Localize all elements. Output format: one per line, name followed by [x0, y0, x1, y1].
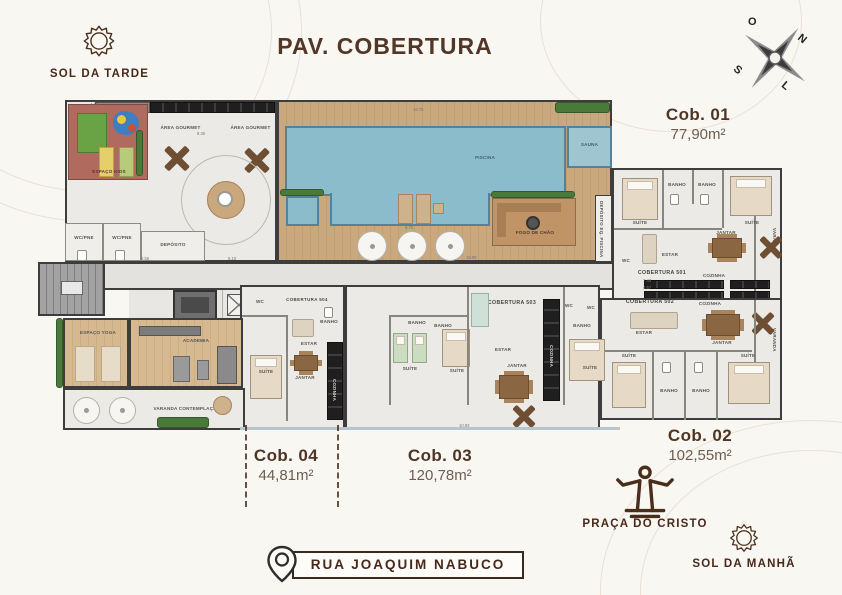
unit-cob04: WC COBERTURA 504 BANHO ESTAR SUÍTE JANTA…	[240, 285, 345, 430]
unit-label-cob02: Cob. 02 102,55m²	[640, 426, 760, 464]
dim-label: 7.48	[643, 278, 651, 283]
wall	[286, 315, 288, 421]
wall	[602, 350, 752, 352]
wc-label: WC	[616, 258, 636, 263]
treadmill	[217, 346, 237, 384]
unit-cob03: COBERTURA 503 ESTAR JANTAR COZINHA WC WC…	[345, 285, 600, 430]
unit-name: Cob. 04	[231, 446, 341, 466]
cozinha-label: COZINHA	[690, 301, 730, 306]
suite-label: SUÍTE	[620, 220, 660, 225]
estar-label: ESTAR	[483, 347, 523, 352]
wall	[242, 315, 287, 317]
suite-label: SUÍTE	[728, 353, 768, 358]
floorplan-page: PAV. COBERTURA SOL DA TARDE O N S L ÁREA…	[0, 0, 842, 595]
elevator-cab	[181, 297, 209, 313]
toilet-fixture	[662, 362, 671, 373]
cozinha-label: COZINHA	[549, 345, 554, 367]
unit-area: 44,81m²	[231, 467, 341, 484]
compass-rose-icon: O N S L	[720, 8, 830, 103]
sol-da-manha-label: SOL DA MANHÃ	[690, 558, 798, 570]
toilet-fixture	[324, 307, 333, 318]
bed	[250, 355, 282, 399]
unit-label-cob04: Cob. 04 44,81m²	[231, 446, 341, 484]
bathtub	[471, 293, 489, 327]
deposito-label: DEPÓSITO	[141, 242, 205, 247]
banho-label: BANHO	[664, 182, 690, 187]
pool-lounger	[416, 194, 431, 224]
dim-label: 18.75	[413, 107, 423, 112]
banho-label: BANHO	[656, 388, 682, 393]
cobertura-502-tag: COBERTURA 502	[610, 299, 690, 305]
banho-label: BANHO	[405, 320, 429, 325]
christ-statue-icon	[602, 463, 688, 519]
bed	[730, 176, 772, 216]
toilet-fixture	[670, 194, 679, 205]
estar-label: ESTAR	[624, 330, 664, 335]
wall	[722, 170, 724, 228]
deposito-eq-piscina-label: DEPÓSITO EQ. PISCINA	[599, 201, 604, 257]
balcony-table	[73, 397, 100, 424]
stair-landing	[61, 281, 83, 295]
bed	[612, 362, 646, 408]
dim-label: 5.10	[228, 256, 236, 261]
banho-label: BANHO	[688, 388, 714, 393]
wall	[389, 315, 467, 317]
dim-label: 4.15	[90, 102, 98, 107]
dim-label: 4.57	[643, 285, 651, 290]
jantar-label: JANTAR	[702, 340, 742, 345]
dining-table	[294, 355, 318, 371]
wc-label: WC	[559, 303, 579, 308]
suite-label: SUÍTE	[610, 353, 648, 358]
jantar-label: JANTAR	[288, 375, 322, 380]
round-table-center	[217, 191, 233, 207]
jantar-label: JANTAR	[497, 363, 537, 368]
unit-area: 102,55m²	[640, 447, 760, 464]
espaco-yoga-label: ESPAÇO YOGA	[65, 330, 131, 335]
area-gourmet-label: ÁREA GOURMET	[153, 125, 208, 130]
unit-extent-dash	[337, 425, 339, 507]
planter-hedge	[157, 417, 209, 428]
suite-label: SUÍTE	[732, 220, 772, 225]
unit-name: Cob. 02	[640, 426, 760, 446]
pool-lounger	[398, 194, 413, 224]
twin-bed	[412, 333, 427, 363]
unit-extent-dash	[245, 425, 247, 507]
suite-label: SUÍTE	[393, 366, 427, 371]
planter-hedge	[280, 189, 324, 196]
pool	[285, 126, 566, 196]
gym-bench	[173, 356, 190, 382]
toilet-fixture	[77, 250, 87, 261]
sofa	[630, 312, 678, 329]
dim-label: 18.09	[466, 255, 476, 260]
floor-plan: ÁREA GOURMET ÁREA GOURMET ESPAÇO KIDS WC…	[35, 95, 783, 435]
balcony-table	[109, 397, 136, 424]
unit-label-cob03: Cob. 03 120,78m²	[380, 446, 500, 484]
bench	[497, 203, 561, 212]
firepit-lounge: FOGO DE CHÃO	[492, 198, 576, 246]
yoga-room: ESPAÇO YOGA	[63, 318, 129, 388]
sauna-room	[567, 126, 612, 168]
sofa	[642, 234, 657, 264]
dim-label: 10.93	[459, 423, 469, 428]
dim-label: 2.55	[141, 256, 149, 261]
kitchen-counter	[730, 280, 770, 289]
dining-table	[499, 375, 529, 399]
sun-icon	[725, 519, 763, 557]
wall	[716, 350, 718, 420]
unit-cob01: SUÍTE BANHO BANHO SUÍTE WC ESTAR JANTAR …	[612, 168, 782, 302]
wall	[692, 170, 694, 204]
umbrella-table	[397, 231, 427, 261]
wc-pne-label: WC/PNE	[103, 235, 141, 240]
banho-label: BANHO	[316, 319, 342, 324]
gourmet-counter	[150, 102, 275, 113]
suite-label: SUÍTE	[250, 369, 282, 374]
weight-rack	[139, 326, 201, 336]
dim-label: 9.75	[405, 225, 413, 230]
compass-star	[720, 8, 830, 103]
unit-cob02: COBERTURA 502 COZINHA ESTAR JANTAR VARAN…	[600, 298, 782, 420]
academia-label: ACADEMIA	[161, 338, 231, 343]
jantar-label: JANTAR	[706, 230, 746, 235]
dining-table	[712, 238, 742, 258]
bed	[622, 178, 658, 220]
suite-label: SUÍTE	[575, 365, 605, 370]
praca-do-cristo-label: PRAÇA DO CRISTO	[575, 518, 715, 530]
planter-hedge	[136, 130, 143, 176]
cozinha-label: COZINHA	[694, 273, 734, 278]
sofa	[292, 319, 314, 337]
umbrella-table	[357, 231, 387, 261]
gourmet-table	[162, 143, 192, 173]
wall	[684, 350, 686, 420]
wall	[467, 287, 469, 405]
compass-west: O	[748, 16, 757, 28]
piscina-label: PISCINA	[455, 155, 515, 160]
plant-pot	[213, 396, 232, 415]
unit-label-cob01: Cob. 01 77,90m²	[638, 105, 758, 143]
pool-side-table	[433, 203, 444, 214]
street-label: RUA JOAQUIM NABUCO	[292, 551, 524, 579]
wc-label: WC	[250, 299, 270, 304]
exercise-bike	[197, 360, 209, 380]
umbrella-table	[435, 231, 465, 261]
wc-label: WC	[581, 305, 601, 310]
cobertura-504-tag: COBERTURA 504	[270, 297, 344, 302]
elevator-shaft	[173, 290, 217, 320]
sol-da-tarde-label: SOL DA TARDE	[42, 68, 157, 80]
banho-label: BANHO	[694, 182, 720, 187]
kitchen-counter	[644, 280, 724, 289]
cozinha-label: COZINHA	[332, 379, 337, 401]
area-gourmet-label: ÁREA GOURMET	[223, 125, 278, 130]
toilet-fixture	[115, 250, 125, 261]
wall	[662, 170, 664, 228]
bed	[442, 329, 470, 367]
bed	[728, 362, 770, 404]
yoga-mat	[101, 346, 121, 382]
wall	[563, 287, 565, 405]
toilet-fixture	[700, 194, 709, 205]
varanda-table	[758, 234, 785, 261]
banho-label: BANHO	[431, 323, 455, 328]
twin-bed	[393, 333, 408, 363]
wc-pne-label: WC/PNE	[65, 235, 103, 240]
planter-hedge	[491, 191, 575, 198]
toilet-fixture	[694, 362, 703, 373]
fire-pit	[526, 216, 540, 230]
page-title: PAV. COBERTURA	[235, 33, 535, 60]
unit-name: Cob. 01	[638, 105, 758, 125]
fogo-de-chao-label: FOGO DE CHÃO	[493, 230, 577, 235]
bed	[569, 339, 605, 381]
estar-label: ESTAR	[652, 252, 688, 257]
varanda-table	[511, 403, 538, 430]
sun-icon	[78, 20, 120, 62]
wall	[652, 350, 654, 420]
unit-area: 77,90m²	[638, 126, 758, 143]
section-line	[240, 427, 620, 430]
sauna-label: SAUNA	[567, 142, 612, 147]
location-pin-icon	[264, 544, 300, 584]
unit-name: Cob. 03	[380, 446, 500, 466]
estar-label: ESTAR	[292, 341, 326, 346]
dining-table	[706, 314, 740, 336]
cobertura-501-tag: COBERTURA 501	[622, 270, 702, 276]
planter-hedge	[555, 102, 610, 113]
gym-room: ACADEMIA	[129, 318, 243, 388]
wall	[389, 315, 391, 405]
planter-hedge	[56, 318, 63, 388]
dim-label: 8.30	[197, 131, 205, 136]
yoga-mat	[75, 346, 95, 382]
contemplation-balcony: VARANDA CONTEMPLAÇÃO	[63, 388, 245, 430]
unit-area: 120,78m²	[380, 467, 500, 484]
banho-label: BANHO	[569, 323, 595, 328]
spa-pool	[286, 196, 319, 226]
